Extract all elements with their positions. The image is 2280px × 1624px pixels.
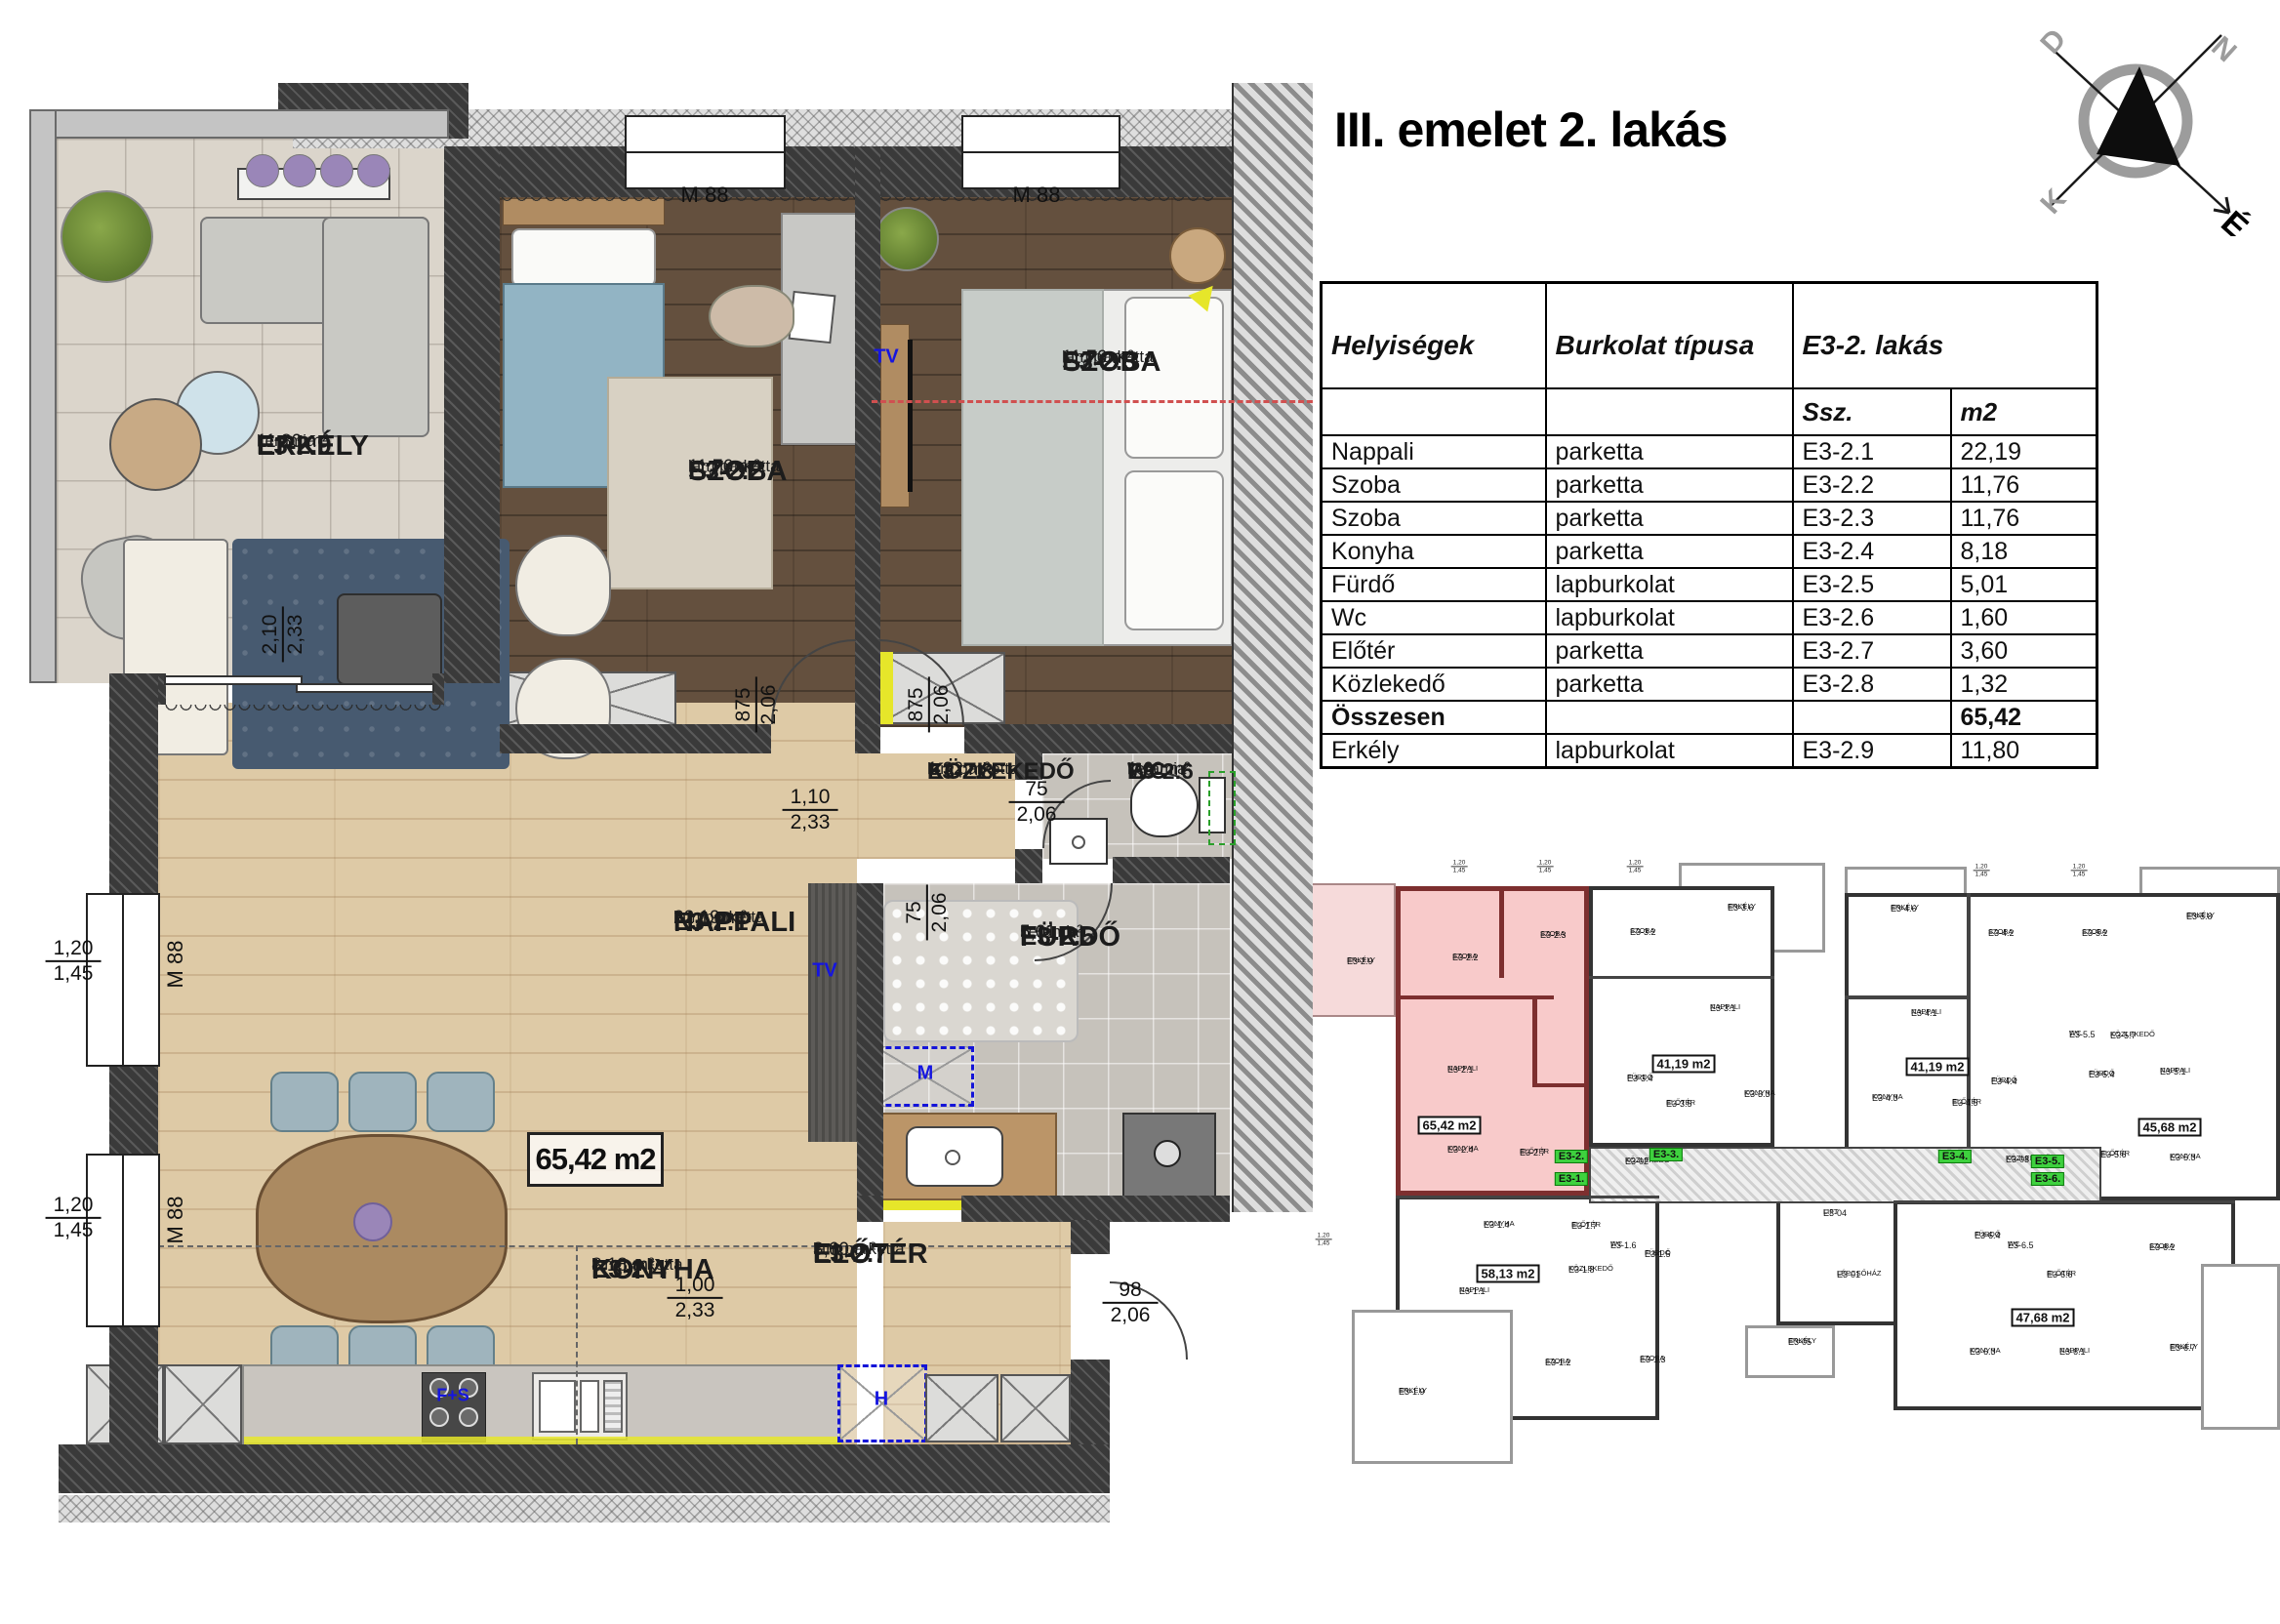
ov-wall: [1398, 995, 1554, 999]
ov-balcony-e329: [1301, 883, 1396, 1017]
table-row: ErkélylapburkolatE3-2.911,80: [1322, 734, 2097, 768]
ov-wall: [1532, 995, 1537, 1085]
table-subheader-row: Ssz. m2: [1322, 388, 2097, 435]
burner: [429, 1407, 449, 1427]
side-table3: [1169, 227, 1226, 284]
ov-dimension-height: 1,45: [1974, 871, 1990, 878]
balcony-sofa: [322, 217, 429, 437]
ov-room-name: ERKÉLY: [1399, 1387, 1427, 1396]
ov-room-name: ELŐTÉR: [1520, 1148, 1549, 1157]
ov-room-name: KONYHA: [2170, 1153, 2201, 1161]
page-title: III. emelet 2. lakás: [1334, 101, 1728, 158]
ov-room-name: SZOBA: [1630, 927, 1654, 936]
ov-room-name: FÜRDŐ: [1975, 1231, 2001, 1239]
window-type-label: M 88: [681, 183, 729, 208]
cell-room-name: Összesen: [1322, 701, 1546, 734]
cell-area-m2: 1,60: [1951, 601, 2097, 634]
tv-label: TV: [874, 346, 899, 369]
table-row: KözlekedőparkettaE3-2.81,32: [1322, 668, 2097, 701]
table-flowers: [353, 1202, 392, 1241]
cell-room-code: [1793, 701, 1951, 734]
entry-closet: [1000, 1374, 1071, 1442]
ov-room-name: NAPPALI: [1459, 1286, 1489, 1295]
ov-room-name: KÖZLEKEDŐ: [2110, 1031, 2155, 1039]
tv3-screen: [908, 340, 913, 492]
ov-dimension-height: 1,45: [1627, 867, 1644, 874]
ov-room-name: ELŐTÉR: [1666, 1099, 1695, 1108]
sink-basin: [580, 1380, 599, 1433]
ov-unit-e36: [1893, 1200, 2235, 1410]
subheader-empty2: [1546, 388, 1793, 435]
wall: [961, 1196, 1230, 1222]
ov-room-name: SZOBA: [1452, 953, 1477, 961]
ground-hatch: [59, 1495, 1110, 1522]
wall: [500, 724, 771, 753]
table-row: WclapburkolatE3-2.61,60: [1322, 601, 2097, 634]
table-row: SzobaparkettaE3-2.211,76: [1322, 468, 2097, 502]
cell-room-code: E3-2.3: [1793, 502, 1951, 535]
dimension-height: 2,06: [1009, 801, 1065, 827]
ov-room-name: SZOBA: [1540, 930, 1565, 939]
dimension-label: 1,201,45: [46, 937, 102, 986]
wall: [1071, 1360, 1110, 1446]
ov-area-box: 45,68 m2: [2138, 1118, 2202, 1137]
wall: [59, 1444, 1110, 1493]
overview-floor-plan: E3-2.9ERKÉLYE3-2.2SZOBAE3-2.3SZOBAE3-2.1…: [1298, 859, 2280, 1624]
cell-flooring-type: parketta: [1546, 468, 1793, 502]
window-type-label: M 88: [1013, 183, 1061, 208]
cell-flooring-type: parketta: [1546, 634, 1793, 668]
dimension-width: 98: [1103, 1279, 1159, 1302]
cell-room-name: Konyha: [1322, 535, 1546, 568]
planter-flower: [283, 154, 316, 187]
dimension-width: 75: [903, 885, 926, 941]
ov-room-name: FÜRDŐ: [2089, 1070, 2115, 1078]
ov-dimension-label: 1,201,45: [1627, 859, 1644, 873]
dimension-width: 1,20: [46, 937, 102, 960]
ov-room-name: ELŐTÉR: [1571, 1221, 1601, 1230]
ov-dimension-height: 1,45: [1451, 867, 1468, 874]
window: [961, 115, 1120, 189]
dimension-height: 2,33: [668, 1297, 723, 1322]
ov-room-name: ERKÉLY: [1728, 903, 1756, 912]
ov-dimension-label: 1,201,45: [1451, 859, 1468, 873]
wall: [1113, 857, 1230, 883]
desk-chair2: [709, 285, 794, 347]
dimension-label: 2,102,33: [259, 607, 307, 663]
ov-dimension-width: 1,20: [1974, 863, 1990, 870]
ov-balcony-e367: [2201, 1264, 2280, 1430]
window-type-label: M 88: [163, 1197, 188, 1244]
ov-room-name: KONYHA: [1744, 1089, 1775, 1098]
ov-room-name: LÉPCSŐHÁZ: [1837, 1270, 1881, 1279]
cell-area-m2: 65,42: [1951, 701, 2097, 734]
bed3-blanket: [961, 289, 1104, 646]
ov-area-box: 47,68 m2: [2012, 1309, 2075, 1327]
dimension-width: 1,10: [783, 786, 838, 809]
subheader-ssz: Ssz.: [1793, 388, 1951, 435]
washer-label: M: [917, 1063, 934, 1085]
table-row: Összesen65,42: [1322, 701, 2097, 734]
compass-rose: N D K É: [2022, 21, 2257, 236]
dimension-label: 752,06: [903, 885, 952, 941]
planter-flower: [357, 154, 390, 187]
section-dash: [576, 1245, 578, 1444]
cell-room-code: E3-2.5: [1793, 568, 1951, 601]
cell-room-code: E3-2.8: [1793, 668, 1951, 701]
dimension-label: 8752,06: [905, 677, 954, 733]
wall: [857, 1196, 883, 1222]
planter-flower: [320, 154, 353, 187]
cell-room-code: E3-2.4: [1793, 535, 1951, 568]
ov-room-name: NAPPALI: [2160, 1067, 2190, 1076]
table-row: ElőtérparkettaE3-2.73,60: [1322, 634, 2097, 668]
media-wall: [808, 883, 857, 1142]
ov-dimension-height: 1,45: [2071, 871, 2088, 878]
ov-room-name: ELŐTÉR: [2100, 1150, 2130, 1158]
dimension-height: 2,06: [755, 677, 781, 733]
entry-closet: [925, 1374, 998, 1442]
ov-dimension-label: 1,201,45: [2071, 863, 2088, 877]
dimension-width: 875: [905, 677, 928, 733]
cell-flooring-type: parketta: [1546, 435, 1793, 468]
ov-dimension-width: 1,20: [1627, 859, 1644, 866]
dining-chair: [427, 1072, 495, 1132]
ov-dimension-label: 1,201,45: [1537, 859, 1554, 873]
cell-room-name: Fürdő: [1322, 568, 1546, 601]
ov-dimension-label: 1,201,45: [1974, 863, 1990, 877]
ov-room-name: SZOBA: [1640, 1355, 1664, 1363]
ov-dimension-width: 1,20: [2071, 863, 2088, 870]
ov-room-name: NAPPALI: [1447, 1065, 1478, 1074]
dimension-label: 8752,06: [732, 677, 781, 733]
ov-room-name: SZOBA: [2082, 928, 2106, 937]
ov-room-name: FÜRDŐ: [1991, 1076, 2017, 1085]
ov-room-name: ERKÉLY: [1891, 904, 1919, 913]
room-area: 11,76 m²: [1062, 347, 1134, 369]
ov-room-name: WC: [1610, 1240, 1623, 1249]
armchair: [515, 535, 611, 636]
header-flooring: Burkolat típusa: [1546, 283, 1793, 389]
dimension-height: 2,06: [926, 885, 952, 941]
bath-accent: [874, 1200, 967, 1210]
cell-area-m2: 3,60: [1951, 634, 2097, 668]
room-area: 1,32 m²: [927, 759, 990, 781]
ov-room-name: ELŐTÉR: [2047, 1270, 2076, 1279]
cell-area-m2: 1,32: [1951, 668, 2097, 701]
ov-room-name: SZOBA: [1988, 928, 2013, 937]
dimension-width: 75: [1009, 778, 1065, 801]
cell-flooring-type: lapburkolat: [1546, 601, 1793, 634]
cell-flooring-type: [1546, 701, 1793, 734]
dimension-width: 2,10: [259, 607, 282, 663]
section-line-red: [872, 400, 1313, 403]
room-area: 1,60 m²: [1127, 759, 1190, 781]
room-area: 11,76 m²: [688, 457, 760, 478]
cell-room-code: E3-2.6: [1793, 601, 1951, 634]
ov-room-name: KONYHA: [1484, 1220, 1515, 1229]
insulation-wave: [164, 705, 444, 717]
ov-room-name: KÖZLEKEDŐ: [1568, 1265, 1613, 1274]
ov-wall: [1396, 1196, 1659, 1198]
kitchen-cabinet: [164, 1364, 242, 1444]
compass-label-e: É: [2214, 204, 2255, 236]
subheader-m2: m2: [1951, 388, 2097, 435]
living-floor: [158, 703, 857, 1444]
ov-area-box: 41,19 m2: [1652, 1055, 1716, 1074]
dimension-height: 1,45: [46, 960, 102, 986]
cell-room-code: E3-2.9: [1793, 734, 1951, 768]
ov-dimension-width: 1,20: [1316, 1232, 1332, 1238]
dimension-label: 1,102,33: [783, 786, 838, 834]
cell-flooring-type: parketta: [1546, 535, 1793, 568]
main-floor-plan: E3-2.9ERKÉLYkerámia11,80 m²E3-2.2SZOBAla…: [0, 0, 1313, 1562]
room-area: 5,01 m²: [1020, 922, 1082, 944]
cell-flooring-type: parketta: [1546, 668, 1793, 701]
ov-unit-tag: E3-2.: [1555, 1150, 1588, 1163]
neighbor-wall: [1232, 83, 1313, 1212]
wall: [855, 146, 880, 753]
ov-room-name: NAPPALI: [1710, 1003, 1740, 1012]
window: [625, 115, 786, 189]
ov-wall: [1532, 1083, 1587, 1087]
cell-area-m2: 11,80: [1951, 734, 2097, 768]
area-table: Helyiségek Burkolat típusa E3-2. lakás S…: [1320, 281, 2098, 769]
cell-area-m2: 8,18: [1951, 535, 2097, 568]
shower-head: [1154, 1140, 1181, 1167]
dining-chair: [348, 1072, 417, 1132]
cell-room-name: Szoba: [1322, 468, 1546, 502]
cell-room-name: Nappali: [1322, 435, 1546, 468]
cell-area-m2: 5,01: [1951, 568, 2097, 601]
sink-drainer: [603, 1380, 623, 1433]
balcony-slider: [164, 675, 303, 685]
stove-label: F+S: [436, 1386, 469, 1406]
balcony-table-wood: [109, 398, 202, 491]
cell-room-code: E3-2.7: [1793, 634, 1951, 668]
balcony-railing: [29, 109, 57, 683]
ov-area-box: 65,42 m2: [1418, 1116, 1482, 1135]
ov-unit-tag: E3-6.: [2031, 1172, 2064, 1186]
table-row: KonyhaparkettaE3-2.48,18: [1322, 535, 2097, 568]
ov-room-name: ERKÉLY: [1788, 1337, 1816, 1346]
wc-shaft: [1208, 771, 1236, 845]
ov-balcony-e305: [1745, 1325, 1835, 1378]
compass-label-n: N: [2205, 30, 2242, 68]
dimension-height: 2,06: [1103, 1302, 1159, 1327]
dimension-height: 2,06: [928, 677, 954, 733]
wall: [1071, 1220, 1110, 1254]
ov-wall: [1499, 888, 1504, 978]
table-row: NappaliparkettaE3-2.122,19: [1322, 435, 2097, 468]
header-unit: E3-2. lakás: [1793, 283, 2097, 389]
table-row: SzobaparkettaE3-2.311,76: [1322, 502, 2097, 535]
ov-room-name: SZOBA: [2149, 1242, 2174, 1251]
ov-room-name: NAPPALI: [2059, 1347, 2090, 1356]
bed3-pillow: [1124, 470, 1224, 630]
laptop: [789, 291, 836, 344]
ov-dimension-height: 1,45: [1316, 1239, 1332, 1247]
room-area: 11,80 m²: [257, 431, 329, 453]
cell-room-name: Közlekedő: [1322, 668, 1546, 701]
balcony-plant: [61, 190, 153, 283]
wall: [1015, 857, 1035, 883]
ov-wall: [1589, 976, 1774, 979]
cell-room-name: Szoba: [1322, 502, 1546, 535]
ov-room-name: WC: [2069, 1030, 2082, 1038]
room-area: 8,18 m²: [591, 1255, 654, 1277]
header-rooms: Helyiségek: [1322, 283, 1546, 389]
tv-label: TV: [812, 960, 837, 983]
plant3: [875, 207, 939, 271]
cell-area-m2: 11,76: [1951, 468, 2097, 502]
ov-room-name: ERKÉLY: [2170, 1343, 2198, 1352]
dimension-height: 2,33: [783, 809, 838, 834]
dimension-height: 2,33: [282, 607, 307, 663]
ov-balcony-e319: [1352, 1310, 1513, 1464]
ov-dimension-label: 1,201,45: [1316, 1232, 1332, 1246]
cell-room-code: E3-2.1: [1793, 435, 1951, 468]
ov-room-name: KONYHA: [1970, 1347, 2001, 1356]
dining-chair: [270, 1072, 339, 1132]
ov-room-name: FÜRDŐ: [1627, 1074, 1653, 1082]
dimension-label: 1,201,45: [46, 1194, 102, 1242]
dimension-label: 752,06: [1009, 778, 1065, 827]
ov-room-name: ERKÉLY: [1347, 956, 1375, 965]
dimension-width: 875: [732, 677, 755, 733]
bed3-pillow: [1124, 297, 1224, 459]
ov-dimension-width: 1,20: [1451, 859, 1468, 866]
cell-flooring-type: lapburkolat: [1546, 734, 1793, 768]
wall: [444, 146, 500, 683]
dimension-width: 1,20: [46, 1194, 102, 1217]
ov-room-name: ERKÉLY: [2186, 912, 2215, 920]
basin-drain: [945, 1150, 960, 1165]
bed2-pillow: [511, 228, 656, 287]
ov-area-box: 41,19 m2: [1906, 1058, 1970, 1076]
table-row: FürdőlapburkolatE3-2.55,01: [1322, 568, 2097, 601]
cell-area-m2: 22,19: [1951, 435, 2097, 468]
ov-room-name: LIFT: [1823, 1208, 1838, 1217]
ov-room-name: FÜRDŐ: [1645, 1249, 1671, 1258]
balcony-railing: [29, 109, 449, 139]
ov-area-box: 58,13 m2: [1477, 1265, 1540, 1283]
ov-room-name: ELŐTÉR: [1952, 1098, 1981, 1107]
cell-flooring-type: lapburkolat: [1546, 568, 1793, 601]
sink-basin: [539, 1380, 576, 1433]
ov-room-name: SZOBA: [1545, 1358, 1569, 1366]
ov-room-name: NAPPALI: [1911, 1008, 1941, 1017]
ov-room-name: WC: [2008, 1240, 2020, 1249]
total-area-box: 65,42 m2: [527, 1132, 664, 1187]
ov-dimension-height: 1,45: [1537, 867, 1554, 874]
ov-room-name: KONYHA: [1447, 1145, 1479, 1154]
compass-label-d: D: [2034, 22, 2072, 60]
cell-room-name: Előtér: [1322, 634, 1546, 668]
dimension-width: 1,00: [668, 1274, 723, 1297]
ov-room-name: KONYHA: [1872, 1093, 1903, 1102]
ov-dimension-width: 1,20: [1537, 859, 1554, 866]
ov-unit-tag: E3-4.: [1938, 1150, 1972, 1163]
ov-wall: [1893, 1200, 2235, 1203]
ov-unit-tag: E3-5.: [2031, 1155, 2064, 1168]
burner: [459, 1407, 478, 1427]
ov-unit-tag: E3-1.: [1555, 1172, 1588, 1186]
cell-room-name: Erkély: [1322, 734, 1546, 768]
floorplan-sheet: E3-2.9ERKÉLYkerámia11,80 m²E3-2.2SZOBAla…: [0, 0, 2280, 1624]
subheader-empty1: [1322, 388, 1546, 435]
room-area: 22,19 m²: [673, 908, 747, 929]
room-area: 3,60 m²: [813, 1239, 875, 1261]
dimension-label: 1,002,33: [668, 1274, 723, 1322]
dimension-label: 982,06: [1103, 1279, 1159, 1327]
wall: [857, 883, 883, 1205]
cell-room-name: Wc: [1322, 601, 1546, 634]
dimension-height: 1,45: [46, 1217, 102, 1242]
cell-room-code: E3-2.2: [1793, 468, 1951, 502]
section-dash: [158, 1245, 1071, 1247]
ov-wall: [1967, 893, 1971, 1147]
wall: [856, 724, 880, 753]
balcony-slider: [296, 683, 434, 693]
table-header-row: Helyiségek Burkolat típusa E3-2. lakás: [1322, 283, 2097, 389]
fridge-label: H: [875, 1389, 888, 1411]
planter-flower: [246, 154, 279, 187]
cell-flooring-type: parketta: [1546, 502, 1793, 535]
window-type-label: M 88: [163, 941, 188, 989]
ov-wall: [1845, 995, 1967, 999]
coffee-table: [337, 593, 442, 685]
ov-unit-tag: E3-3.: [1649, 1148, 1683, 1161]
cell-area-m2: 11,76: [1951, 502, 2097, 535]
